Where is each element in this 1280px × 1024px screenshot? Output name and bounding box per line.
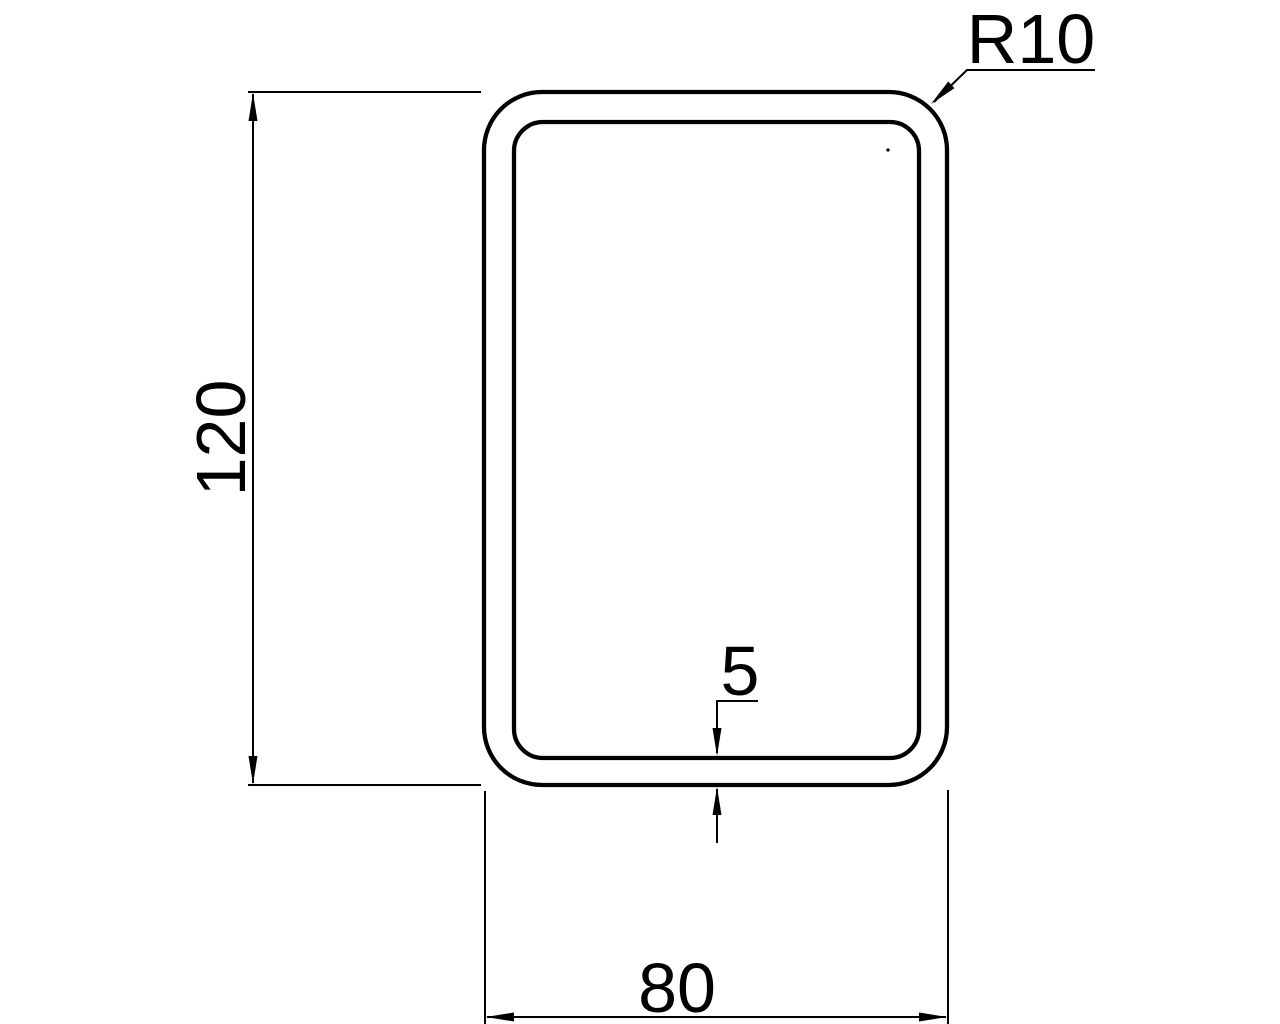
width-dim-label: 80	[638, 949, 716, 1024]
radius-arrow-icon	[931, 82, 955, 105]
outer-contour	[484, 92, 947, 785]
drawing-canvas: 120 80 5 R10	[0, 0, 1280, 1024]
thickness-arrow-down-icon	[713, 728, 722, 756]
tube-cross-section-drawing: 120 80 5 R10	[0, 0, 1280, 1024]
inner-contour	[514, 122, 919, 758]
radius-dim-label: R10	[967, 0, 1095, 78]
height-arrow-down-icon	[249, 756, 258, 784]
height-arrow-up-icon	[249, 93, 258, 121]
width-arrow-right-icon	[919, 1013, 947, 1022]
stray-speck	[886, 148, 889, 151]
width-arrow-left-icon	[486, 1013, 514, 1022]
height-dim-label: 120	[182, 380, 260, 497]
thickness-dim-label: 5	[721, 632, 760, 710]
thickness-arrow-up-icon	[713, 787, 722, 815]
